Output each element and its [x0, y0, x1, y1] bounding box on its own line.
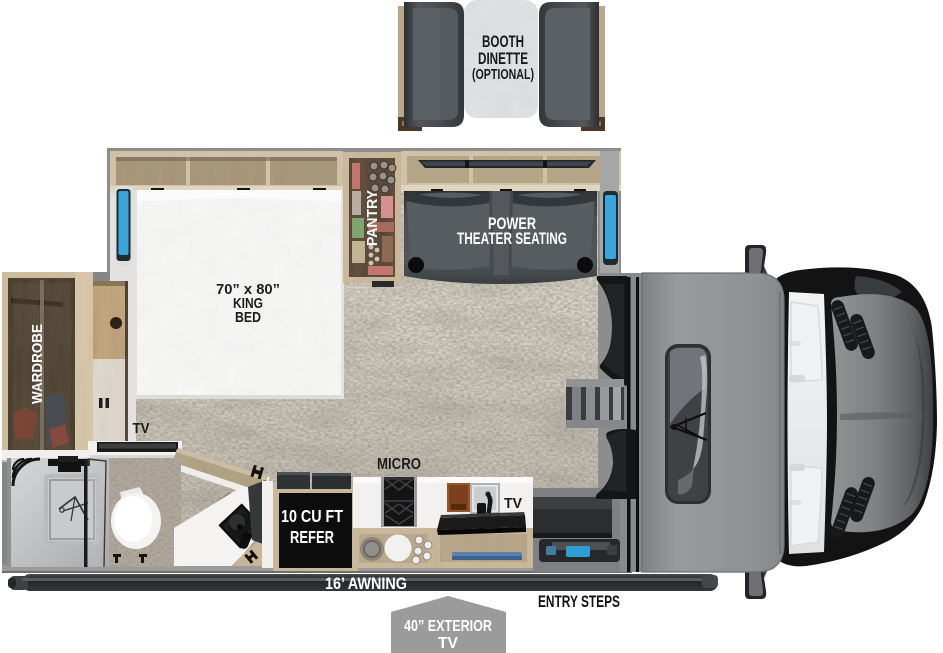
svg-text:PANTRY: PANTRY: [364, 190, 381, 246]
svg-text:ENTRY STEPS: ENTRY STEPS: [538, 593, 620, 611]
svg-text:16’ AWNING: 16’ AWNING: [325, 575, 407, 593]
svg-text:WARDROBE: WARDROBE: [29, 324, 46, 404]
svg-text:TV: TV: [438, 635, 459, 652]
svg-text:TV: TV: [133, 420, 150, 437]
svg-text:BED: BED: [235, 309, 261, 326]
svg-text:THEATER SEATING: THEATER SEATING: [457, 230, 567, 248]
svg-text:10 CU FT: 10 CU FT: [281, 506, 343, 526]
svg-text:40” EXTERIOR: 40” EXTERIOR: [404, 618, 492, 635]
svg-text:MICRO: MICRO: [377, 456, 421, 473]
svg-text:(OPTIONAL): (OPTIONAL): [472, 67, 534, 83]
svg-text:TV: TV: [504, 495, 522, 512]
svg-text:DINETTE: DINETTE: [478, 49, 528, 68]
svg-text:REFER: REFER: [290, 527, 334, 547]
